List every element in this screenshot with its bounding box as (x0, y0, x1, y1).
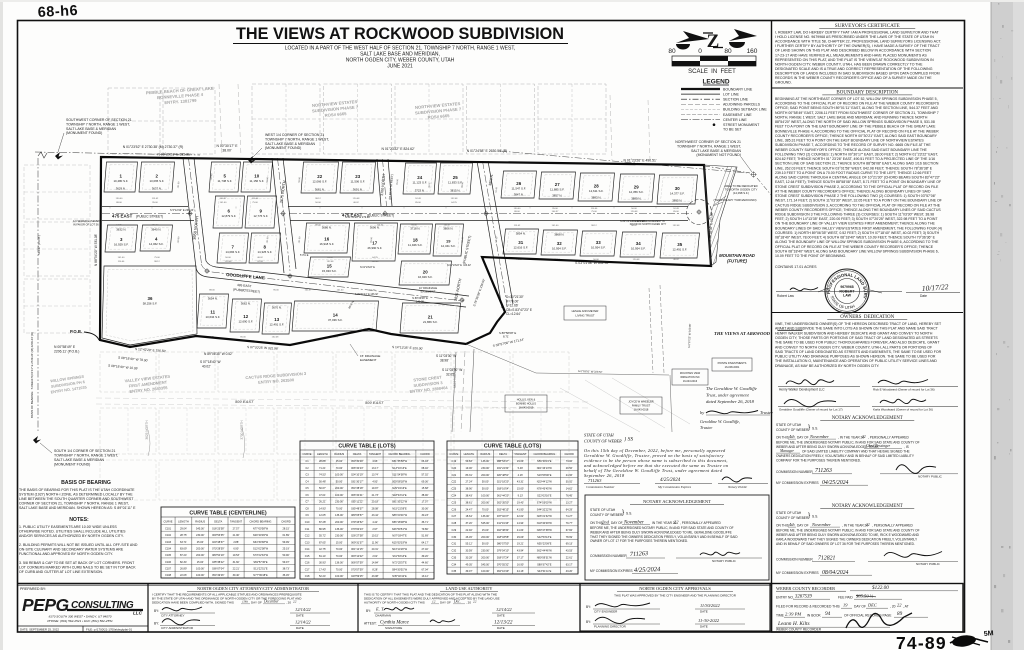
svg-text:018°03'58": 018°03'58" (497, 535, 509, 539)
svg-text:110.00: 110.00 (252, 198, 259, 200)
svg-text:100.00': 100.00' (481, 493, 490, 497)
svg-text:LENGTH: LENGTH (464, 452, 475, 456)
svg-text:11-30-2022: 11-30-2022 (698, 618, 720, 623)
svg-text:22: 22 (862, 435, 866, 439)
svg-text:68.02': 68.02' (422, 466, 429, 470)
svg-text:20.18': 20.18' (372, 500, 379, 504)
svg-text:239.10 FEET TO A POINT ON A 70: 239.10 FEET TO A POINT ON A 70.00 FOOT R… (775, 171, 932, 175)
svg-text:78.69': 78.69' (566, 535, 573, 539)
svg-text:3. 5/8 REBAR & CAP TO BE SET A: 3. 5/8 REBAR & CAP TO BE SET AT BACK OF … (19, 561, 135, 565)
svg-text:037°02'27": 037°02'27" (497, 514, 509, 518)
svg-text:3700 NORTH: 3700 NORTH (240, 420, 244, 440)
svg-text:32.05': 32.05' (446, 372, 455, 376)
svg-text:LINE, 385.31 FEET TO A POINT O: LINE, 385.31 FEET TO A POINT ON THE EAST… (775, 139, 924, 143)
svg-text:MY COMMISSION EXPIRES: MY COMMISSION EXPIRES (776, 571, 819, 575)
svg-text:64.25: 64.25 (372, 257, 378, 259)
svg-text:70.00': 70.00' (336, 547, 343, 551)
svg-text:011°19'43": 011°19'43" (497, 521, 509, 525)
svg-text:Leann H. Kilts: Leann H. Kilts (777, 621, 810, 627)
svg-text:3883 N.: 3883 N. (591, 196, 601, 200)
svg-text:GROUND.: GROUND. (775, 81, 792, 85)
svg-text:76.45': 76.45' (566, 493, 573, 497)
svg-text:712821: 712821 (818, 556, 835, 562)
svg-text:E. T.: E. T. (375, 607, 384, 612)
svg-text:104.37: 104.37 (552, 211, 559, 213)
svg-text:ACCORDING TO THE OFFICIAL PLAT: ACCORDING TO THE OFFICIAL PLAT OF RECORD… (775, 102, 940, 106)
svg-text:41.64': 41.64' (517, 528, 524, 532)
svg-text:12/13/22: 12/13/22 (494, 620, 513, 626)
svg-text:11: 11 (210, 310, 215, 315)
svg-text:DEC: DEC (867, 603, 877, 608)
svg-text:200.00': 200.00' (196, 546, 205, 550)
svg-text:N29°19'16"E: N29°19'16"E (392, 486, 407, 490)
svg-text:MOUNTAIN VIEW: MOUNTAIN VIEW (680, 372, 701, 375)
svg-text:22: 22 (473, 600, 477, 604)
svg-text:WEBER COUNTY RECORDER’S OFFICE: WEBER COUNTY RECORDER’S OFFICE; THENCE A… (775, 208, 941, 212)
svg-text:46.02: 46.02 (631, 225, 637, 227)
svg-text:110.00: 110.00 (369, 290, 376, 292)
svg-text:N 00°30'17" E: N 00°30'17" E (216, 144, 238, 148)
svg-text:2. BUILDING PERMITS WILL NOT B: 2. BUILDING PERMITS WILL NOT BE ISSUED U… (19, 543, 138, 547)
svg-text:22.21': 22.21' (233, 567, 240, 571)
svg-text:3718 N.: 3718 N. (410, 227, 420, 231)
svg-text:CURVE: CURVE (449, 452, 458, 456)
svg-text:I/WE, THE UNDERSIGNED OWNER(S): I/WE, THE UNDERSIGNED OWNER(S) OF THE HE… (775, 322, 942, 326)
svg-text:41.90': 41.90' (517, 507, 524, 511)
svg-text:4.16': 4.16' (518, 473, 524, 477)
svg-text:Cynthia Marce: Cynthia Marce (380, 621, 410, 626)
svg-text:BASIS OF BEARING: BASIS OF BEARING (61, 480, 111, 486)
svg-text:C35: C35 (452, 569, 457, 573)
svg-text:21,866 S.F.: 21,866 S.F. (423, 320, 438, 324)
svg-text:061°12'15": 061°12'15" (351, 547, 363, 551)
svg-text:SALT LAKE BASE & MERIDIAN: SALT LAKE BASE & MERIDIAN (66, 127, 117, 131)
svg-text:C12: C12 (305, 534, 310, 538)
svg-text:LAW: LAW (843, 294, 852, 298)
svg-text:C23: C23 (452, 487, 457, 491)
svg-text:S44°32'22"W: S44°32'22"W (537, 507, 553, 511)
svg-text:S.S.: S.S. (626, 512, 632, 516)
svg-text:N29°40'09"W: N29°40'09"W (253, 533, 269, 537)
svg-text:036°07'04": 036°07'04" (212, 567, 224, 571)
svg-text:3723 N.: 3723 N. (415, 189, 425, 193)
svg-text:066°34'23": 066°34'23" (351, 466, 363, 470)
svg-text:544.37' (P.O.B.): 544.37' (P.O.B.) (37, 235, 41, 255)
svg-text:38.90': 38.90' (466, 487, 473, 491)
svg-text:13,634 S.F.: 13,634 S.F. (205, 315, 220, 319)
svg-text:28: 28 (594, 184, 599, 189)
svg-text:88.00: 88.00 (514, 211, 520, 213)
svg-text:89: 89 (897, 611, 903, 617)
svg-text:PUBLIC UTILITY AND DRAINAGE PU: PUBLIC UTILITY AND DRAINAGE PURPOSES AS … (775, 355, 936, 359)
svg-text:NORTH OGDEN CITY, WEBER COUNTY: NORTH OGDEN CITY, WEBER COUNTY, UTAH, HA… (775, 62, 923, 66)
svg-text:DAY OF: DAY OF (611, 521, 623, 525)
svg-text:10: 10 (254, 174, 259, 179)
svg-text:LINE, 262.03 FEET; THENCE SOUT: LINE, 262.03 FEET; THENCE SOUTH 03°01’58… (775, 166, 933, 170)
svg-text:67.04': 67.04' (422, 567, 429, 571)
svg-text:12,776 S.F.: 12,776 S.F. (253, 214, 268, 218)
svg-text:3889 N.: 3889 N. (631, 197, 641, 201)
svg-text:4.96': 4.96' (372, 459, 378, 463)
svg-text:S81°35'12"W: S81°35'12"W (392, 500, 408, 504)
svg-text:50.00: 50.00 (225, 257, 231, 259)
svg-text:136.00': 136.00' (335, 513, 344, 517)
svg-text:67.84': 67.84' (566, 528, 573, 532)
svg-text:12,690 S.F.: 12,690 S.F. (238, 319, 253, 323)
svg-text:33: 33 (596, 240, 601, 245)
svg-text:10.15': 10.15' (372, 534, 379, 538)
svg-text:57.02': 57.02' (422, 473, 429, 477)
svg-text:080°57'50": 080°57'50" (497, 542, 509, 546)
svg-text:136.00': 136.00' (335, 561, 344, 565)
svg-text:200.00': 200.00' (335, 486, 344, 490)
svg-text:30.36': 30.36' (422, 506, 429, 510)
svg-text:3629 N.: 3629 N. (116, 187, 126, 191)
svg-text:200.00': 200.00' (481, 473, 490, 477)
svg-text:2206.11' (P.O.B.): 2206.11' (P.O.B.) (54, 349, 79, 353)
svg-text:WEBER AND AFTER BEING DULY SWO: WEBER AND AFTER BEING DULY SWORN ACKNOWL… (776, 533, 920, 537)
svg-text:12,491 S.F.: 12,491 S.F. (269, 322, 284, 326)
svg-text:ON THIS: ON THIS (590, 521, 603, 525)
svg-text:031°30'17": 031°30'17" (351, 479, 363, 483)
svg-text:S12°02'08"W: S12°02'08"W (253, 546, 269, 550)
svg-text:3632 N.: 3632 N. (116, 228, 126, 232)
svg-text:29.09': 29.09' (517, 535, 524, 539)
svg-text:C33: C33 (452, 555, 457, 559)
svg-text:95.00: 95.00 (552, 208, 558, 210)
svg-text:43.20': 43.20' (566, 569, 573, 573)
svg-text:63.71': 63.71' (180, 540, 187, 544)
svg-text:ALONG THE BOUNDARY LINE OF WIL: ALONG THE BOUNDARY LINE OF WILLOW SPRING… (775, 240, 939, 244)
svg-text:FOLLOWING TWO (2) COURSES: 1): FOLLOWING TWO (2) COURSES: 1) NORTH 00°3… (775, 152, 938, 156)
svg-text:CITY ENGINEER: CITY ENGINEER (594, 610, 618, 614)
svg-text:110.00: 110.00 (591, 208, 598, 210)
svg-text:WEBER AND AFTER BEING DULY SWO: WEBER AND AFTER BEING DULY SWORN ACKNOWL… (590, 530, 732, 534)
svg-text:FAMILY TRUST: FAMILY TRUST (632, 404, 651, 408)
svg-text:THE INSTALLATION O, MAINTENANC: THE INSTALLATION O, MAINTENANCE AND OPER… (775, 359, 937, 363)
svg-text:79.77': 79.77' (566, 521, 573, 525)
svg-text:SIGNATURE: SIGNATURE (385, 626, 402, 630)
svg-text:3625 NORTH: 3625 NORTH (145, 420, 149, 440)
svg-text:16: 16 (324, 237, 329, 242)
svg-text:DATE: DATE (497, 626, 505, 630)
svg-text:85.00: 85.00 (327, 257, 333, 259)
svg-text:(PUBLIC STREET): (PUBLIC STREET) (136, 215, 163, 219)
svg-text:TANGENT: TANGENT (230, 520, 243, 524)
svg-text:S88°37'42"E: S88°37'42"E (537, 562, 552, 566)
svg-text:016°23'58": 016°23'58" (212, 526, 224, 530)
svg-text:LENGTH: LENGTH (317, 452, 328, 456)
svg-text:FEET TO A POINT ON THE EAST BO: FEET TO A POINT ON THE EAST BOUNDARY LIN… (775, 125, 936, 129)
svg-text:I FURTHER CERTIFY BY AUTHORITY: I FURTHER CERTIFY BY AUTHORITY OF THE OW… (775, 44, 940, 48)
svg-text:130.00: 130.00 (152, 225, 159, 227)
svg-text:120.48: 120.48 (633, 259, 640, 261)
svg-text:COMMISSION NUMBER: COMMISSION NUMBER (590, 554, 627, 558)
svg-text:BEFORE ME, THE UNDERSIGNED NOT: BEFORE ME, THE UNDERSIGNED NOTARY PUBLIC… (776, 440, 920, 444)
svg-text:COUNTY OF WEBER: COUNTY OF WEBER (776, 516, 809, 520)
svg-text:38.00': 38.00' (222, 149, 231, 153)
svg-text:16-043-0018: 16-043-0018 (634, 408, 649, 412)
svg-text:47.01': 47.01' (319, 493, 326, 497)
svg-text:LAND USE AUTHORITY: LAND USE AUTHORITY (445, 586, 492, 591)
svg-text:100.00': 100.00' (335, 473, 344, 477)
svg-text:CITY ADMINISTRATOR: CITY ADMINISTRATOR (161, 626, 194, 630)
svg-text:132.48: 132.48 (272, 337, 279, 339)
svg-text:141.28: 141.28 (416, 300, 424, 303)
svg-text:11/30/2022: 11/30/2022 (700, 603, 720, 608)
svg-text:130.00: 130.00 (514, 208, 521, 210)
svg-text:089°05'57": 089°05'57" (351, 513, 363, 517)
svg-text:28.08': 28.08' (372, 506, 379, 510)
svg-text:S.S.: S.S. (812, 427, 818, 431)
svg-text:500 EAST: 500 EAST (235, 399, 254, 404)
svg-text:8.71': 8.71' (503, 335, 509, 339)
svg-text:C29: C29 (452, 528, 457, 532)
svg-text:75.00: 75.00 (154, 257, 160, 259)
svg-text:15.68': 15.68' (422, 486, 429, 490)
svg-text:04/25/2024: 04/25/2024 (822, 479, 849, 486)
svg-text:40.02': 40.02' (202, 364, 211, 368)
svg-text:230.00': 230.00' (335, 500, 344, 504)
svg-text:C34: C34 (452, 562, 457, 566)
svg-text:230.00': 230.00' (196, 533, 205, 537)
svg-text:10,480 S.F.: 10,480 S.F. (113, 179, 128, 183)
svg-text:87.28': 87.28' (319, 520, 326, 524)
svg-text:15.00': 15.00' (482, 528, 489, 532)
svg-text:THE SAME TO BE USED FOR PUBLIC: THE SAME TO BE USED FOR PUBLIC THOROUGHF… (775, 341, 940, 345)
svg-text:N 88°54'20" W 531.08': N 88°54'20" W 531.08' (94, 234, 98, 266)
svg-text:22.06': 22.06' (180, 573, 187, 577)
svg-text:COUNTY OF WEBER: COUNTY OF WEBER (584, 439, 622, 444)
svg-text:08°18’40” WEST, 78.00 FEET; 4): 08°18’40” WEST, 78.00 FEET; 4) SOUTH 08°… (775, 236, 936, 240)
svg-text:55.12': 55.12' (466, 542, 473, 546)
svg-text:DATE: DATE (296, 626, 304, 630)
svg-text:ATTEST:: ATTEST: (364, 622, 377, 626)
svg-text:November: November (811, 522, 831, 527)
svg-text:020°48'51": 020°48'51" (497, 473, 509, 477)
svg-text:CURVE TABLE (LOTS): CURVE TABLE (LOTS) (338, 444, 396, 450)
svg-text:CHORD BEARING: CHORD BEARING (250, 520, 272, 524)
svg-text:74.27': 74.27' (566, 514, 573, 518)
svg-text:95.00: 95.00 (152, 202, 158, 204)
svg-text:38.98': 38.98' (440, 358, 449, 362)
svg-text:22: 22 (293, 600, 297, 604)
svg-text:ON THIS: ON THIS (776, 524, 789, 528)
svg-text:SALT LAKE BASE & MERIDIAN: SALT LAKE BASE & MERIDIAN (54, 458, 105, 462)
svg-text:C31: C31 (452, 542, 457, 546)
svg-text:64.29': 64.29' (566, 507, 573, 511)
svg-text:OF OFFICIAL RECORDS PAGE: OF OFFICIAL RECORDS PAGE (844, 614, 892, 618)
svg-text:BOUNDARY LINE: BOUNDARY LINE (723, 87, 753, 91)
svg-text:26,990 S.F.: 26,990 S.F. (367, 246, 382, 250)
svg-text:5.49': 5.49' (518, 466, 524, 470)
svg-text:N59°49'15"E: N59°49'15"E (537, 459, 552, 463)
svg-text:069°31'37": 069°31'37" (351, 540, 363, 544)
svg-text:STATE OF UTAH: STATE OF UTAH (584, 433, 615, 438)
svg-text:THAT THEY SIGNED THE OWNERS DE: THAT THEY SIGNED THE OWNERS DEDICATION F… (590, 535, 738, 539)
svg-text:TIME: TIME (776, 614, 785, 618)
svg-text:SECTION LINE: SECTION LINE (723, 98, 749, 102)
svg-text:TANGENT: TANGENT (514, 452, 527, 456)
svg-text:PHONE: (801) 562-2521 • FAX: (: PHONE: (801) 562-2521 • FAX: (801) 562-2… (47, 619, 113, 623)
svg-text:30.93': 30.93' (319, 561, 326, 565)
svg-text:N 01°23'22" E 163.02': N 01°23'22" E 163.02' (447, 264, 472, 267)
svg-text:WEST 1/4 CORNER OF SECTION 21: WEST 1/4 CORNER OF SECTION 21 (265, 133, 324, 137)
svg-text:70.00': 70.00' (336, 506, 343, 510)
svg-text:070°55'32": 070°55'32" (497, 562, 509, 566)
svg-text:LLC: LLC (133, 611, 143, 616)
svg-text:44.60': 44.60' (422, 561, 429, 565)
svg-text:10.09 FEET TO THE POINT OF BEG: 10.09 FEET TO THE POINT OF BEGINNING. (775, 254, 846, 258)
svg-text:C19: C19 (452, 459, 457, 463)
svg-text:5' P.U.E.: 5' P.U.E. (300, 254, 309, 257)
svg-text:26: 26 (516, 181, 521, 186)
svg-text:HOLLIS, KEN &: HOLLIS, KEN & (517, 398, 536, 402)
svg-text:, 20: , 20 (890, 605, 896, 609)
svg-text:27.40': 27.40' (422, 547, 429, 551)
svg-text:N77°39'48"E: N77°39'48"E (253, 573, 268, 577)
svg-text:19.06': 19.06' (466, 466, 473, 470)
svg-text:THE VIEWS AT ARKWOOD: THE VIEWS AT ARKWOOD (714, 331, 771, 336)
svg-text:CL=12.64': CL=12.64' (506, 312, 521, 316)
svg-text:035°48'37": 035°48'37" (351, 506, 363, 510)
svg-text:N55°23'09"E: N55°23'09"E (537, 542, 552, 546)
svg-text:200.00': 200.00' (335, 520, 344, 524)
svg-text:S11°54'38"W: S11°54'38"W (392, 473, 407, 477)
svg-text:(FUTURE): (FUTURE) (727, 258, 747, 263)
svg-text:14.62': 14.62' (566, 487, 573, 491)
svg-text:BONNEVILLE PHASE 4, ACCORDING: BONNEVILLE PHASE 4, ACCORDING TO THE OFF… (775, 129, 939, 133)
svg-text:27.57': 27.57' (233, 526, 240, 530)
svg-text:020°48'37": 020°48'37" (212, 540, 224, 544)
svg-text:N77°00'58"W: N77°00'58"W (253, 526, 269, 530)
svg-text:1. PUBLIC UTILITY EASEMENTS AR: 1. PUBLIC UTILITY EASEMENTS ARE 10.00' W… (19, 525, 117, 529)
svg-text:38.43': 38.43' (466, 493, 473, 497)
svg-text:SALT LAKE BASE AND MERIDIAN. S: SALT LAKE BASE AND MERIDIAN. SHOWN HEREO… (19, 506, 136, 510)
svg-text:N51°35'58"W: N51°35'58"W (392, 459, 408, 463)
svg-text:C14: C14 (305, 547, 310, 551)
svg-text:SALT LAKE BASE & MERIDIAN: SALT LAKE BASE & MERIDIAN (691, 149, 742, 153)
svg-text:26.21': 26.21' (319, 500, 326, 504)
svg-text:C27: C27 (452, 514, 457, 518)
svg-text:14.84': 14.84' (372, 561, 379, 565)
svg-text:N26°21'32"W: N26°21'32"W (537, 514, 553, 518)
svg-text:98.12: 98.12 (591, 225, 597, 227)
svg-text:C101: C101 (165, 526, 172, 530)
svg-text:2nd: 2nd (602, 519, 610, 524)
svg-text:FUNCTIONAL AND APPROVED BY NOR: FUNCTIONAL AND APPROVED BY NORTH OGDEN C… (19, 552, 113, 556)
svg-text:AUTHORITY OF NORTH OGDEN CITY: AUTHORITY OF NORTH OGDEN CITY THIS (364, 600, 425, 604)
svg-text:BUILDING SETBACK LINE: BUILDING SETBACK LINE (723, 108, 767, 112)
svg-text:N13°16'13"E: N13°16'13"E (392, 466, 407, 470)
svg-text:12,356 S.F.: 12,356 S.F. (629, 190, 644, 194)
svg-text:C104: C104 (165, 546, 172, 550)
svg-text:SYSTEM (1927) NORTH-I ZONE, AS: SYSTEM (1927) NORTH-I ZONE, AS DETERMINE… (19, 493, 133, 497)
svg-text:CITY ATTORNEY: CITY ATTORNEY (161, 613, 185, 617)
svg-text:COMMISSION NUMBER: COMMISSION NUMBER (776, 470, 813, 474)
svg-text:031°24'34": 031°24'34" (497, 466, 509, 470)
svg-text:Notary Public: Notary Public (727, 485, 748, 489)
svg-text:13.74': 13.74' (372, 473, 379, 477)
svg-text:Commission Number: Commission Number (586, 485, 615, 489)
svg-text:SOUTH 08°18’40” WEST, ALONG SA: SOUTH 08°18’40” WEST, ALONG SAID BOUNDAR… (775, 249, 939, 253)
svg-text:C9: C9 (305, 513, 309, 517)
svg-text:16,929 S.F.: 16,929 S.F. (418, 275, 433, 279)
svg-text:16-043-0019: 16-043-0019 (519, 406, 534, 410)
svg-text:3640 N.: 3640 N. (151, 228, 161, 232)
svg-text:46.02: 46.02 (353, 202, 359, 204)
svg-text:THE BASIS OF BEARING FOR THIS: THE BASIS OF BEARING FOR THIS PLAT IS TH… (19, 488, 135, 492)
svg-text:2.88': 2.88' (233, 540, 239, 544)
svg-text:P.O.B.: P.O.B. (70, 329, 82, 334)
svg-text:OF LAND SHOWN ON THIS PLAT AND: OF LAND SHOWN ON THIS PLAT AND DESCRIBED… (775, 49, 931, 53)
svg-text:DRAINAGE, AS MAY BE AUTHORIZED: DRAINAGE, AS MAY BE AUTHORIZED BY NORTH … (775, 364, 879, 368)
svg-text:12: 12 (243, 314, 248, 319)
svg-text:NORTH OGDEN CITY APPROVALS: NORTH OGDEN CITY APPROVALS (639, 586, 711, 591)
svg-text:N 01°23'22" E: N 01°23'22" E (360, 266, 375, 269)
svg-text:S84°30'51"W: S84°30'51"W (392, 567, 408, 571)
svg-text:ON THIS: ON THIS (776, 436, 789, 440)
svg-text:120.48: 120.48 (631, 211, 638, 213)
svg-text:132.48: 132.48 (673, 225, 680, 227)
svg-text:3686 N.: 3686 N. (322, 226, 332, 230)
svg-text:S74°53'00"W: S74°53'00"W (537, 500, 553, 504)
svg-text:S 5°12'42" E 239.24': S 5°12'42" E 239.24' (170, 208, 194, 212)
svg-text:C13: C13 (305, 540, 310, 544)
svg-text:FEET; 2) SOUTH 14°13’35” EAST,: FEET; 2) SOUTH 14°13’35” EAST, 220.00 FE… (775, 217, 938, 221)
svg-text:25.00': 25.00' (336, 459, 343, 463)
svg-text:N15°21'59"E: N15°21'59"E (392, 506, 407, 510)
svg-text:36.71': 36.71' (422, 520, 429, 524)
svg-text:COURSES: 1) NORTH 89°06’35” WE: COURSES: 1) NORTH 89°06’35” WEST, 0.52 F… (775, 231, 940, 235)
svg-text:061°44'20": 061°44'20" (497, 493, 509, 497)
svg-text:25: 25 (453, 175, 458, 180)
svg-text:64.25: 64.25 (116, 225, 122, 227)
svg-text:C11: C11 (305, 527, 310, 531)
svg-text:KARLA WOODWARD THAT THEY SIGNE: KARLA WOODWARD THAT THEY SIGNED THE OWNE… (776, 537, 918, 541)
svg-text:The Geraldine W. Goodliffe: The Geraldine W. Goodliffe (706, 386, 757, 391)
svg-text:23: 23 (355, 174, 360, 179)
svg-text:Trustee: Trustee (700, 425, 712, 430)
svg-text:101.00: 101.00 (118, 257, 125, 259)
svg-text:ON-SITE CULINARY AND SECONDARY: ON-SITE CULINARY AND SECONDARY WATER SYS… (19, 548, 124, 552)
svg-text:98.12: 98.12 (315, 198, 321, 200)
svg-text:29.04': 29.04' (180, 526, 187, 530)
svg-text:83.31': 83.31' (466, 473, 473, 477)
svg-text:22.92': 22.92' (466, 528, 473, 532)
svg-text:COUNTY OF WEBER: COUNTY OF WEBER (776, 428, 809, 432)
svg-text:, PERSONALLY APPEARED: , PERSONALLY APPEARED (680, 521, 722, 525)
svg-text:30.23': 30.23' (422, 513, 429, 517)
svg-text:WEBER COUNTY RECORDER: WEBER COUNTY RECORDER (776, 628, 822, 632)
svg-text:110.00: 110.00 (118, 261, 125, 263)
svg-text:12,341 S.F.: 12,341 S.F. (441, 244, 456, 248)
svg-text:C7: C7 (305, 500, 309, 504)
svg-text:, 20: , 20 (286, 600, 291, 604)
svg-text:100.00': 100.00' (196, 573, 205, 577)
svg-text:81.14': 81.14' (319, 554, 326, 558)
svg-text:NORTHWEST CORNER OF SECTION 21: NORTHWEST CORNER OF SECTION 21 (675, 140, 741, 144)
svg-text:AND CONVEY TO NORTH OGDEN CITY: AND CONVEY TO NORTH OGDEN CITY, WEBER CO… (775, 345, 932, 349)
svg-text:3662 N.: 3662 N. (241, 302, 251, 306)
svg-text:42.75': 42.75' (319, 547, 326, 551)
svg-text:NORTH, RANGE 1 WEST, SALT LAKE: NORTH, RANGE 1 WEST, SALT LAKE BASE AND … (775, 115, 928, 119)
svg-text:75.00: 75.00 (591, 211, 597, 213)
svg-text:3868 N.: 3868 N. (554, 233, 564, 237)
svg-text:12/14/22: 12/14/22 (496, 607, 512, 612)
svg-text:9679968: 9679968 (840, 285, 853, 289)
svg-text:DAY OF: DAY OF (797, 436, 809, 440)
